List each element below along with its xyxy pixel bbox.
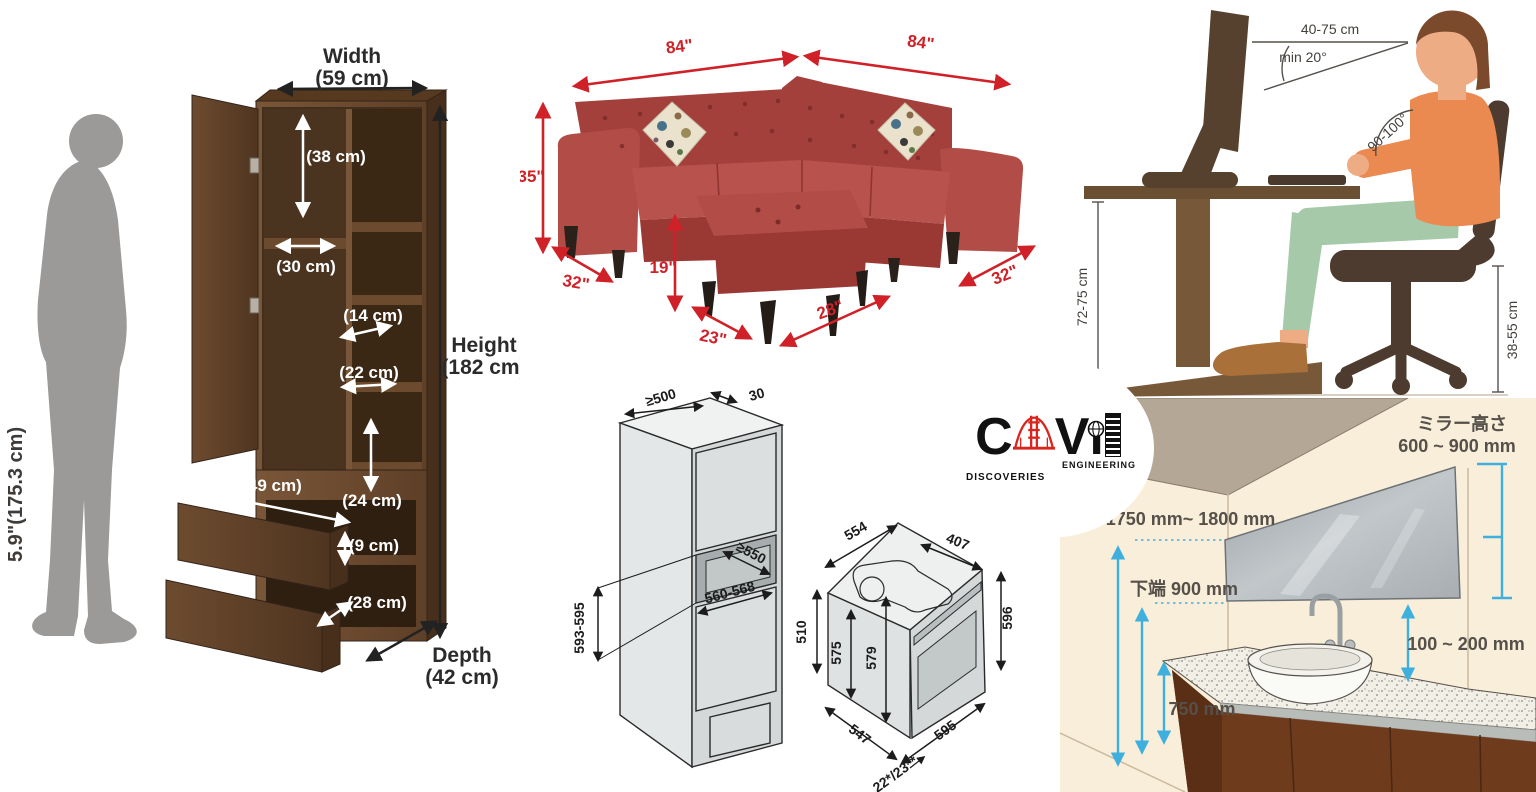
wardrobe-drawing — [166, 90, 446, 672]
sofa-width-left-label: 84" — [665, 35, 694, 57]
height-value: (182 cm) — [441, 356, 520, 379]
furniture-dimensions-collage: 5.9"(175.3 cm) — [0, 0, 1536, 792]
mirror-height-value: 600 ~ 900 mm — [1398, 436, 1516, 456]
oven-left-height-label: 510 — [793, 620, 809, 644]
mirror-height-title: ミラー高さ — [1417, 413, 1507, 434]
viewing-angle-label: min 20° — [1279, 49, 1327, 65]
desk-height-label: 72-75 cm — [1074, 268, 1090, 326]
ottoman-drawing — [696, 190, 868, 344]
ottoman-depth-label: 23" — [698, 326, 728, 350]
oven-bottom-depth-label: 547 — [846, 721, 874, 748]
drawer-width-label: (49 cm) — [242, 476, 302, 495]
oven-top-rear-label: 407 — [944, 530, 972, 554]
oven-cabinet-drawing — [620, 398, 782, 767]
keyboard-drawing — [1268, 175, 1346, 185]
shelf-22-label: (22 cm) — [339, 363, 399, 382]
logo-letter-v: V — [1055, 415, 1090, 459]
viewing-distance-label: 40-75 cm — [1301, 21, 1359, 37]
civil-engineering-discoveries-logo: C V ı — [942, 358, 1154, 538]
wardrobe-dimensions-image: 5.9"(175.3 cm) — [0, 0, 520, 792]
logo-discoveries-text: DISCOVERIES — [966, 472, 1136, 483]
drawer-height-label: (9 cm) — [349, 536, 399, 555]
sofa-depth-left-label: 32" — [561, 271, 591, 294]
width-label: Width — [323, 45, 381, 68]
oven-inner-height-label: 575 — [828, 641, 844, 665]
height-label: Height — [451, 334, 516, 357]
hinge-bottom — [250, 298, 259, 313]
depth-label: Depth — [432, 644, 492, 667]
mirror-counter-gap-label: 100 ~ 200 mm — [1407, 634, 1525, 654]
globe-icon — [1087, 399, 1105, 443]
width-value: (59 cm) — [315, 67, 389, 90]
hinge-top — [250, 158, 259, 173]
shelf-38-label: (38 cm) — [306, 147, 366, 166]
ergonomic-desk-posture-image: 40-75 cm min 20° 90-100° 72-75 cm 38-55 … — [1060, 0, 1536, 403]
sofa-width-right-label: 84" — [906, 31, 935, 54]
sofa-depth-right-label: 32" — [989, 261, 1021, 289]
human-silhouette — [32, 114, 137, 644]
counter-height-label: 750 mm — [1168, 699, 1235, 719]
shelf-24-label: (24 cm) — [342, 491, 402, 510]
sectional-sofa-drawing — [558, 76, 1023, 344]
person-height-label: 5.9"(175.3 cm) — [5, 427, 27, 562]
monitor-drawing — [1142, 10, 1249, 188]
seat-height-label: 38-55 cm — [1504, 301, 1520, 359]
sofa-dimensions-image: 84" 84" 35" 32" 19" 23" 28" 32" — [520, 0, 1060, 390]
oven-right-height-label: 596 — [999, 606, 1015, 630]
building-icon — [1105, 413, 1121, 457]
shelf-30-label: (30 cm) — [276, 257, 336, 276]
mirror-bottom-edge-label: 下端 900 mm — [1130, 579, 1238, 599]
sofa-height-label: 35" — [520, 167, 544, 186]
depth-value: (42 cm) — [425, 666, 499, 689]
shelf-14-label: (14 cm) — [343, 306, 403, 325]
drawer-depth-label: (28 cm) — [347, 593, 407, 612]
logo-letter-c: C — [975, 415, 1013, 459]
rear-gap-label: 30 — [747, 385, 767, 404]
niche-top-width-label: ≥500 — [643, 385, 677, 409]
ottoman-height-label: 19" — [650, 258, 677, 277]
bridge-icon — [1013, 408, 1055, 459]
oven-top-depth-label: 554 — [841, 518, 869, 544]
niche-height-label: 593-595 — [571, 602, 587, 654]
oven-mid-height-label: 579 — [863, 646, 879, 670]
